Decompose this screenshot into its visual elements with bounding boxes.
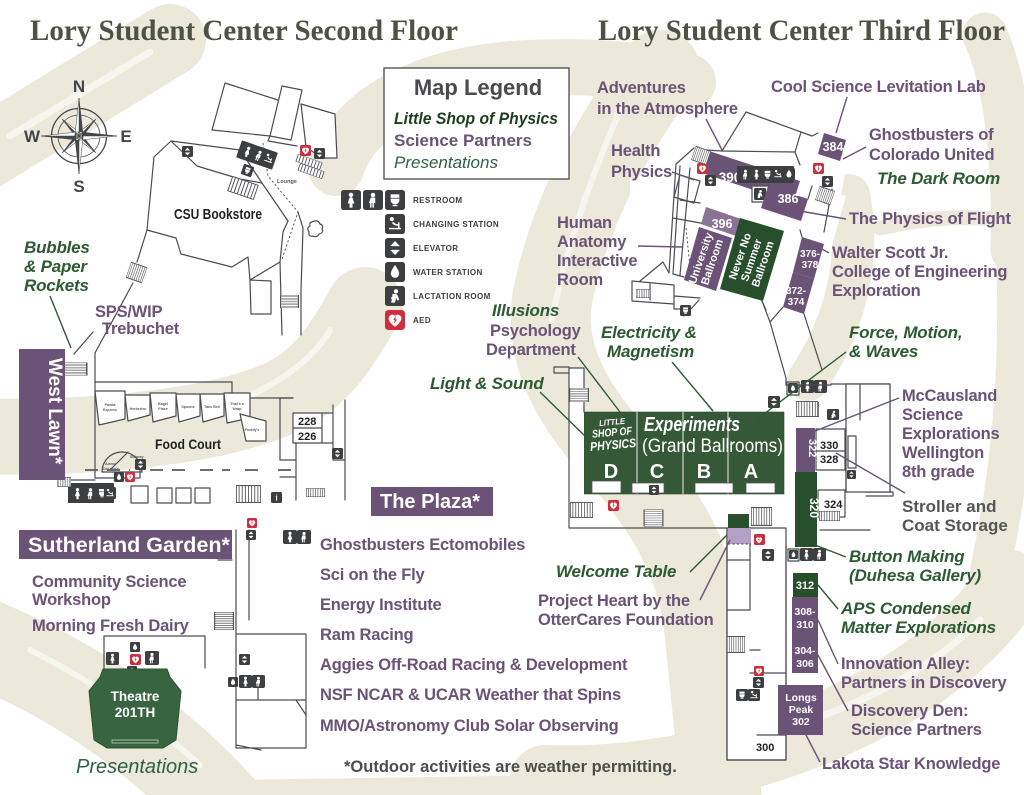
svg-text:Stroller and: Stroller and — [902, 497, 996, 516]
svg-text:328: 328 — [820, 454, 838, 466]
svg-text:Partners in Discovery: Partners in Discovery — [841, 674, 1007, 692]
svg-text:306: 306 — [796, 658, 814, 670]
svg-text:Map Legend: Map Legend — [414, 75, 542, 100]
svg-text:Express: Express — [103, 408, 117, 412]
svg-text:310: 310 — [796, 619, 814, 631]
svg-text:374: 374 — [788, 297, 805, 308]
svg-text:Peak: Peak — [789, 704, 814, 716]
svg-text:8th grade: 8th grade — [902, 463, 974, 481]
svg-text:Lory Student Center Second Flo: Lory Student Center Second Floor — [30, 14, 458, 47]
svg-text:Matter Explorations: Matter Explorations — [841, 618, 996, 637]
svg-text:Experiments: Experiments — [644, 414, 740, 436]
svg-text:Psychology: Psychology — [490, 322, 582, 340]
svg-text:Interactive: Interactive — [557, 252, 637, 270]
svg-text:OtterCares Foundation: OtterCares Foundation — [538, 611, 714, 629]
svg-text:Energy Institute: Energy Institute — [320, 596, 442, 614]
svg-text:226: 226 — [298, 431, 316, 443]
svg-text:Anatomy: Anatomy — [557, 233, 627, 251]
svg-text:NSF NCAR & UCAR Weather that S: NSF NCAR & UCAR Weather that Spins — [320, 686, 621, 704]
svg-text:Bagel: Bagel — [158, 402, 168, 406]
svg-text:Alamo: Alamo — [105, 462, 117, 466]
svg-text:That's a: That's a — [230, 402, 244, 406]
svg-text:Subway: Subway — [130, 455, 144, 459]
svg-text:Bubbles: Bubbles — [24, 238, 90, 257]
svg-text:Lory Student Center Third Floo: Lory Student Center Third Floor — [598, 14, 1005, 47]
svg-text:Lounge: Lounge — [277, 179, 297, 185]
svg-text:Room: Room — [557, 271, 603, 289]
svg-text:Department: Department — [486, 341, 576, 359]
svg-text:Ghostbusters Ectomobiles: Ghostbusters Ectomobiles — [320, 536, 525, 554]
svg-text:Panda: Panda — [105, 403, 117, 407]
svg-text:Rockets: Rockets — [24, 276, 89, 295]
svg-text:Workshop: Workshop — [32, 591, 111, 609]
svg-text:The Dark Room: The Dark Room — [877, 169, 1000, 188]
svg-text:(Duhesa Gallery): (Duhesa Gallery) — [849, 566, 981, 585]
svg-text:APS Condensed: APS Condensed — [840, 599, 971, 618]
svg-text:Science Partners: Science Partners — [394, 131, 532, 150]
svg-text:(Grand Ballrooms): (Grand Ballrooms) — [642, 435, 783, 457]
svg-text:& Waves: & Waves — [849, 342, 918, 361]
svg-text:Trebuchet: Trebuchet — [102, 320, 180, 338]
svg-text:Ram Racing: Ram Racing — [320, 626, 413, 644]
svg-text:The Physics of Flight: The Physics of Flight — [849, 210, 1011, 228]
svg-text:201TH: 201TH — [115, 705, 156, 720]
svg-text:Presentations: Presentations — [394, 153, 498, 172]
svg-text:Place: Place — [158, 407, 167, 411]
svg-text:300: 300 — [756, 742, 774, 754]
svg-text:Wellington: Wellington — [902, 444, 984, 462]
svg-text:308-: 308- — [794, 606, 816, 618]
svg-text:CSU Bookstore: CSU Bookstore — [174, 206, 262, 223]
svg-text:The Plaza*: The Plaza* — [380, 491, 480, 513]
svg-text:372-: 372- — [786, 286, 806, 297]
svg-text:S: S — [73, 177, 84, 196]
svg-text:Ghostbusters of: Ghostbusters of — [869, 126, 994, 144]
svg-text:396: 396 — [712, 217, 733, 231]
svg-text:Magnetism: Magnetism — [607, 342, 694, 361]
svg-text:378: 378 — [802, 260, 819, 271]
svg-text:Science Partners: Science Partners — [851, 721, 982, 739]
svg-text:B: B — [697, 461, 711, 483]
svg-text:Taco Bell: Taco Bell — [204, 405, 220, 409]
svg-text:324: 324 — [824, 499, 843, 511]
svg-text:330: 330 — [820, 440, 838, 452]
svg-text:CHANGING STATION: CHANGING STATION — [413, 220, 499, 229]
svg-text:Wrap: Wrap — [233, 407, 243, 411]
svg-text:Freddy's: Freddy's — [245, 428, 260, 432]
svg-text:Theatre: Theatre — [111, 689, 160, 704]
svg-text:& Paper: & Paper — [24, 257, 88, 276]
svg-text:Colorado United: Colorado United — [869, 146, 994, 164]
svg-text:Sutherland Garden*: Sutherland Garden* — [28, 533, 231, 557]
svg-text:Science: Science — [902, 406, 963, 424]
svg-text:Community Science: Community Science — [32, 573, 186, 591]
svg-text:Longs: Longs — [785, 692, 817, 704]
svg-text:Aggies Off-Road Racing & Devel: Aggies Off-Road Racing & Development — [320, 656, 628, 674]
svg-text:*Outdoor activities are weathe: *Outdoor activities are weather permitti… — [344, 758, 677, 776]
svg-text:302: 302 — [792, 716, 810, 728]
svg-text:Button Making: Button Making — [849, 547, 965, 566]
svg-text:Illusions: Illusions — [492, 301, 559, 320]
svg-text:322: 322 — [806, 439, 818, 457]
svg-text:Coat Storage: Coat Storage — [902, 516, 1008, 535]
svg-text:Food Court: Food Court — [155, 437, 221, 452]
svg-text:N: N — [73, 77, 85, 96]
svg-text:Innovation Alley:: Innovation Alley: — [841, 655, 970, 673]
svg-text:384: 384 — [823, 140, 844, 154]
svg-text:College of Engineering: College of Engineering — [832, 263, 1007, 281]
svg-text:LACTATION ROOM: LACTATION ROOM — [413, 292, 491, 301]
svg-text:Discovery Den:: Discovery Den: — [851, 702, 968, 720]
svg-text:in the Atmosphere: in the Atmosphere — [597, 100, 738, 118]
svg-text:Little Shop of Physics: Little Shop of Physics — [394, 109, 558, 128]
svg-text:Explorations: Explorations — [902, 425, 1000, 443]
svg-text:Presentations: Presentations — [76, 756, 198, 778]
svg-text:Welcome Table: Welcome Table — [556, 562, 676, 581]
svg-text:E: E — [120, 127, 131, 146]
svg-text:Human: Human — [557, 214, 612, 232]
svg-text:West Lawn*: West Lawn* — [44, 358, 65, 465]
svg-text:Electricity &: Electricity & — [601, 323, 697, 342]
svg-text:McCausland: McCausland — [902, 387, 997, 405]
svg-text:D: D — [604, 461, 618, 483]
svg-text:376-: 376- — [800, 249, 820, 260]
svg-text:W: W — [24, 127, 41, 146]
svg-text:SPS/WIP: SPS/WIP — [95, 303, 163, 321]
svg-text:Project Heart by the: Project Heart by the — [538, 592, 690, 610]
svg-text:304-: 304- — [794, 645, 816, 657]
svg-text:MMO/Astronomy Club Solar Obser: MMO/Astronomy Club Solar Observing — [320, 717, 618, 735]
svg-text:Herberien: Herberien — [130, 407, 147, 411]
svg-text:Sci on the Fly: Sci on the Fly — [320, 566, 425, 584]
svg-text:WATER STATION: WATER STATION — [413, 268, 483, 277]
svg-text:Light & Sound: Light & Sound — [430, 374, 544, 393]
svg-text:Spoons: Spoons — [181, 405, 194, 409]
svg-text:Adventures: Adventures — [597, 79, 686, 97]
svg-text:Morning Fresh Dairy: Morning Fresh Dairy — [32, 617, 190, 635]
svg-text:320: 320 — [807, 498, 821, 518]
svg-text:Walter Scott Jr.: Walter Scott Jr. — [832, 244, 948, 262]
svg-text:RESTROOM: RESTROOM — [413, 196, 462, 205]
svg-text:ELEVATOR: ELEVATOR — [413, 244, 458, 253]
svg-text:Lakota Star Knowledge: Lakota Star Knowledge — [822, 755, 1000, 773]
svg-text:Exploration: Exploration — [832, 282, 921, 300]
svg-text:AED: AED — [413, 316, 431, 325]
svg-text:312: 312 — [796, 580, 814, 592]
svg-text:C: C — [650, 461, 664, 483]
svg-text:386: 386 — [778, 192, 799, 206]
svg-text:Health: Health — [611, 142, 660, 160]
svg-text:Physics: Physics — [611, 163, 672, 181]
svg-text:Force, Motion,: Force, Motion, — [849, 323, 962, 342]
svg-text:Cool Science Levitation Lab: Cool Science Levitation Lab — [771, 78, 986, 96]
svg-text:A: A — [744, 461, 758, 483]
svg-text:228: 228 — [298, 416, 316, 428]
